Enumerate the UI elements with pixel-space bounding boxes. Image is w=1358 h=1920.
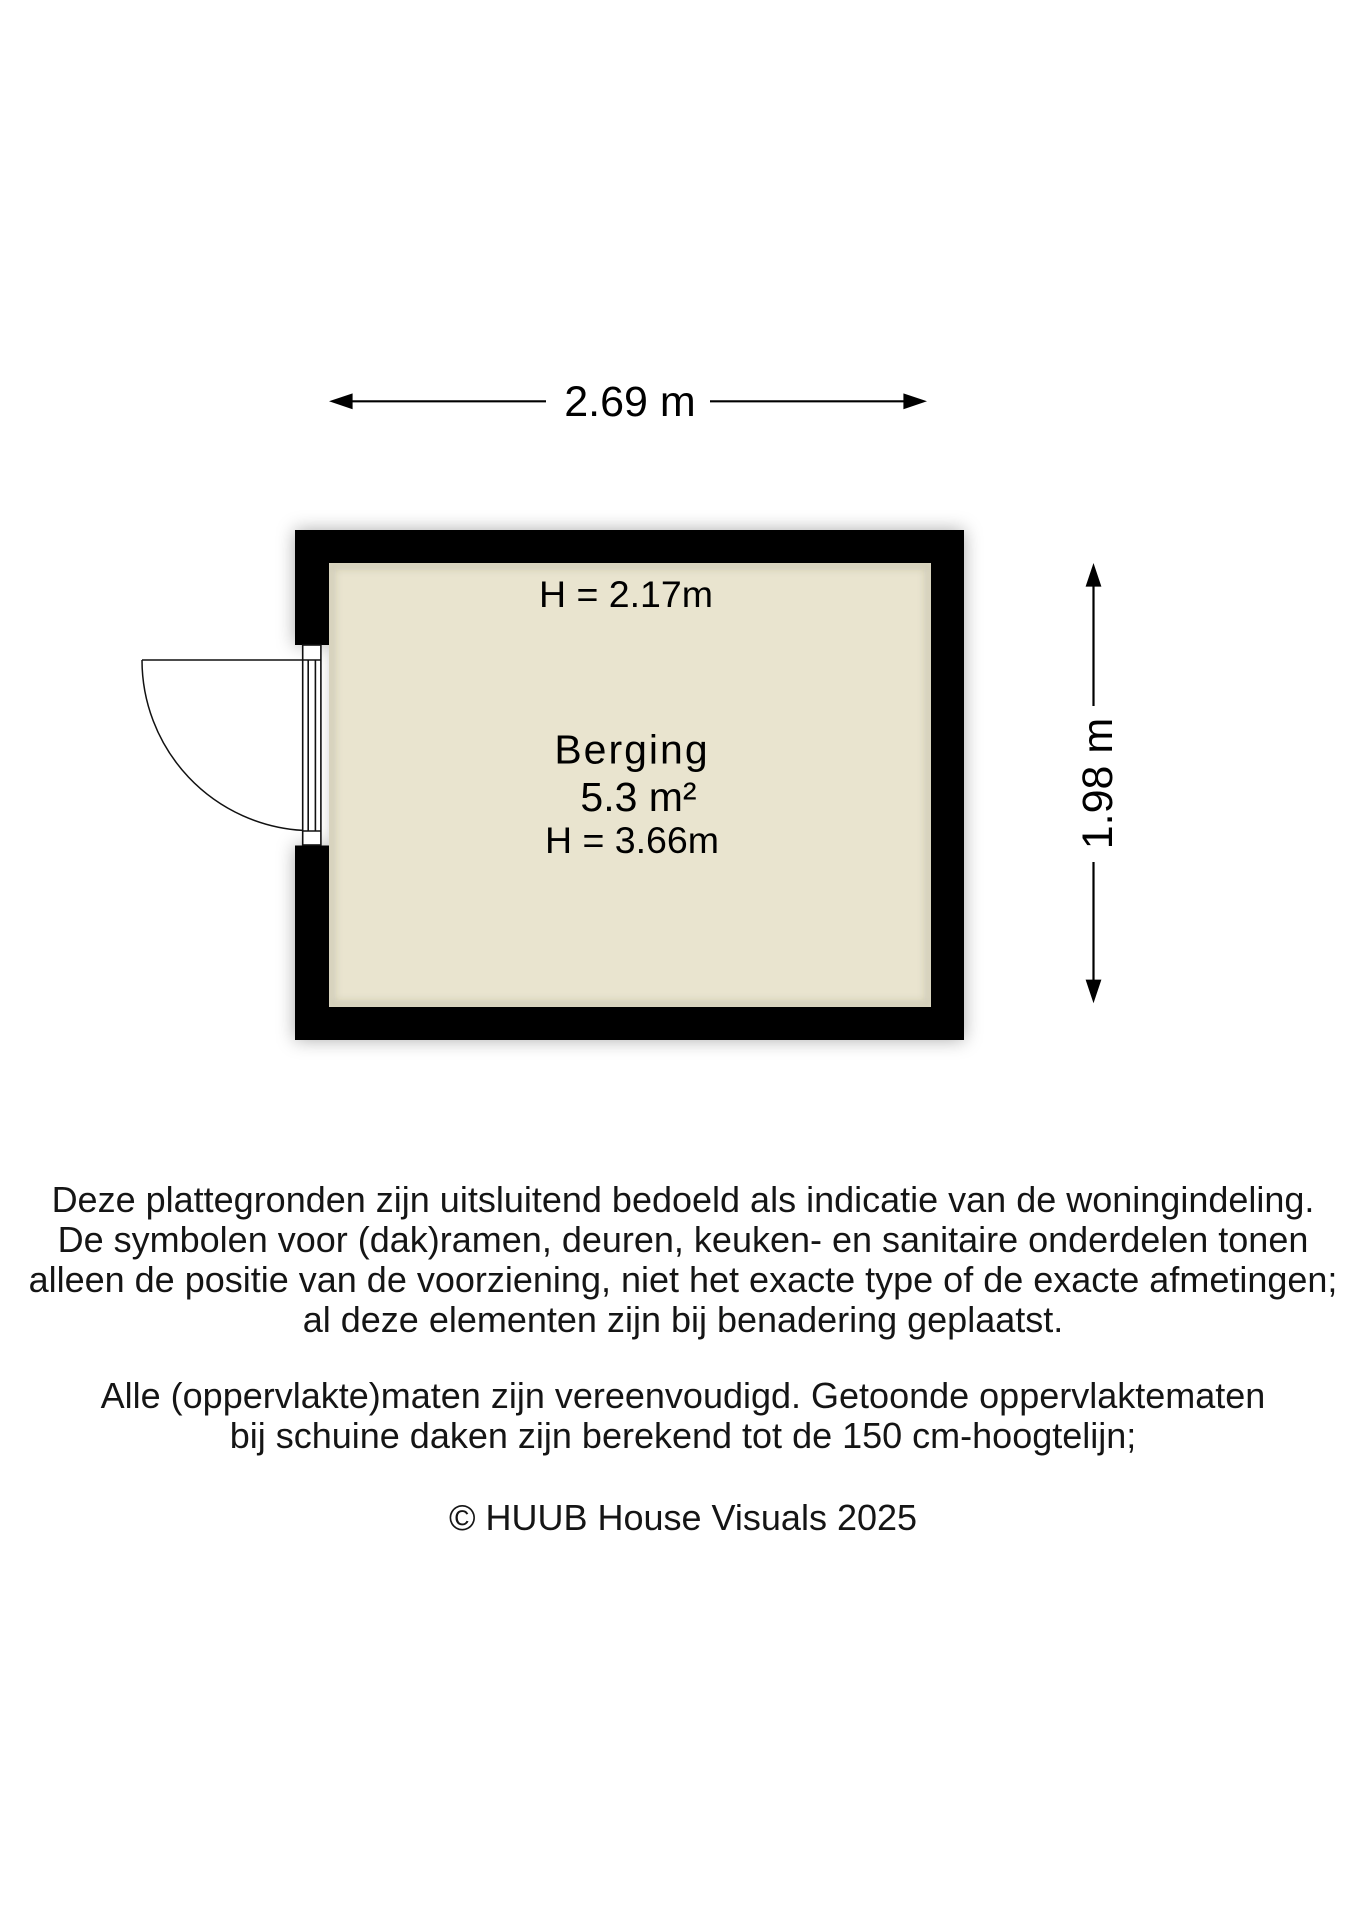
svg-text:2.69 m: 2.69 m	[564, 378, 695, 426]
svg-text:H = 2.17m: H = 2.17m	[539, 573, 713, 615]
svg-text:Berging: Berging	[554, 727, 709, 773]
svg-text:1.98 m: 1.98 m	[1074, 718, 1122, 849]
svg-text:H = 3.66m: H = 3.66m	[545, 819, 719, 861]
svg-text:5.3 m²: 5.3 m²	[580, 774, 696, 820]
